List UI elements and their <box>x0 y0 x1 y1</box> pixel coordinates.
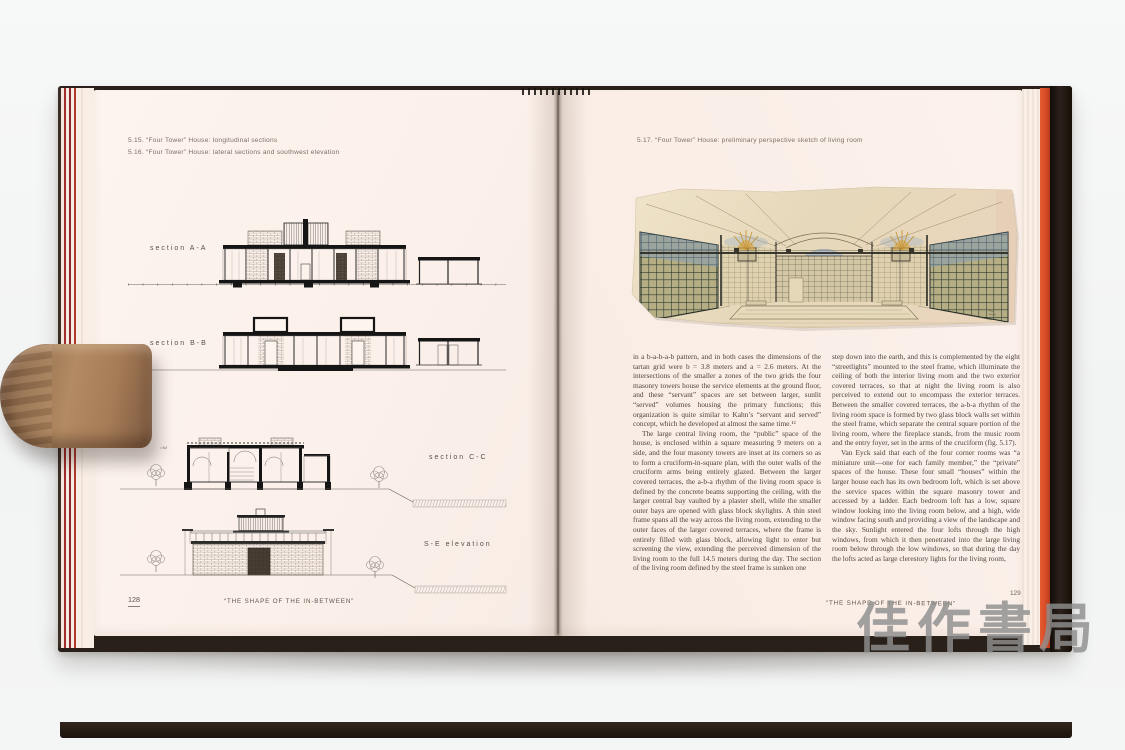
label-section-cc: section C-C <box>429 454 488 461</box>
wooden-paperweight <box>0 344 152 448</box>
wood-carved-ridges <box>0 344 52 448</box>
label-section-aa: section A-A <box>150 245 207 252</box>
perspective-sketch-figure <box>626 182 1022 334</box>
body-text-columns: in a b-a-b-a-b pattern, and in both case… <box>633 352 1020 600</box>
right-page-edges <box>1022 89 1040 645</box>
text-column-1: in a b-a-b-a-b pattern, and in both case… <box>633 352 821 600</box>
se-elevation-drawing <box>120 509 506 593</box>
photo-background: 5.15. “Four Tower” House: longitudinal s… <box>0 0 1125 750</box>
paragraph: Van Eyck said that each of the four corn… <box>832 448 1020 563</box>
gutter-line <box>557 92 559 634</box>
right-endpaper-edge <box>1040 88 1050 648</box>
label-se-elevation: S-E elevation <box>424 541 492 548</box>
right-page: 5.17. “Four Tower” House: preliminary pe… <box>558 90 1022 636</box>
binding-stitches <box>522 88 594 95</box>
figure-caption-517: 5.17. “Four Tower” House: preliminary pe… <box>637 137 863 144</box>
right-cover-edge <box>1050 86 1072 652</box>
label-section-bb: section B-B <box>150 340 208 347</box>
left-page: 5.15. “Four Tower” House: longitudinal s… <box>94 90 558 636</box>
bottom-cover-edge <box>60 722 1072 738</box>
paragraph: in a b-a-b-a-b pattern, and in both case… <box>633 352 821 429</box>
bookstore-watermark: 佳作書局 <box>856 584 1100 663</box>
running-footer-left: “THE SHAPE OF THE IN-BETWEEN” <box>224 598 354 605</box>
figure-caption-516: 5.16. “Four Tower” House: lateral sectio… <box>128 149 339 156</box>
paragraph: The large central living room, the “publ… <box>633 429 821 573</box>
figure-caption-515: 5.15. “Four Tower” House: longitudinal s… <box>128 137 277 144</box>
page-number-left: 128 <box>128 595 140 607</box>
text-column-2: step down into the earth, and this is co… <box>832 352 1020 600</box>
section-cc-drawing <box>120 438 506 507</box>
architectural-sections-drawing <box>108 212 528 610</box>
paragraph: step down into the earth, and this is co… <box>832 352 1020 448</box>
book: 5.15. “Four Tower” House: longitudinal s… <box>58 86 1072 652</box>
section-aa-drawing <box>128 219 506 288</box>
